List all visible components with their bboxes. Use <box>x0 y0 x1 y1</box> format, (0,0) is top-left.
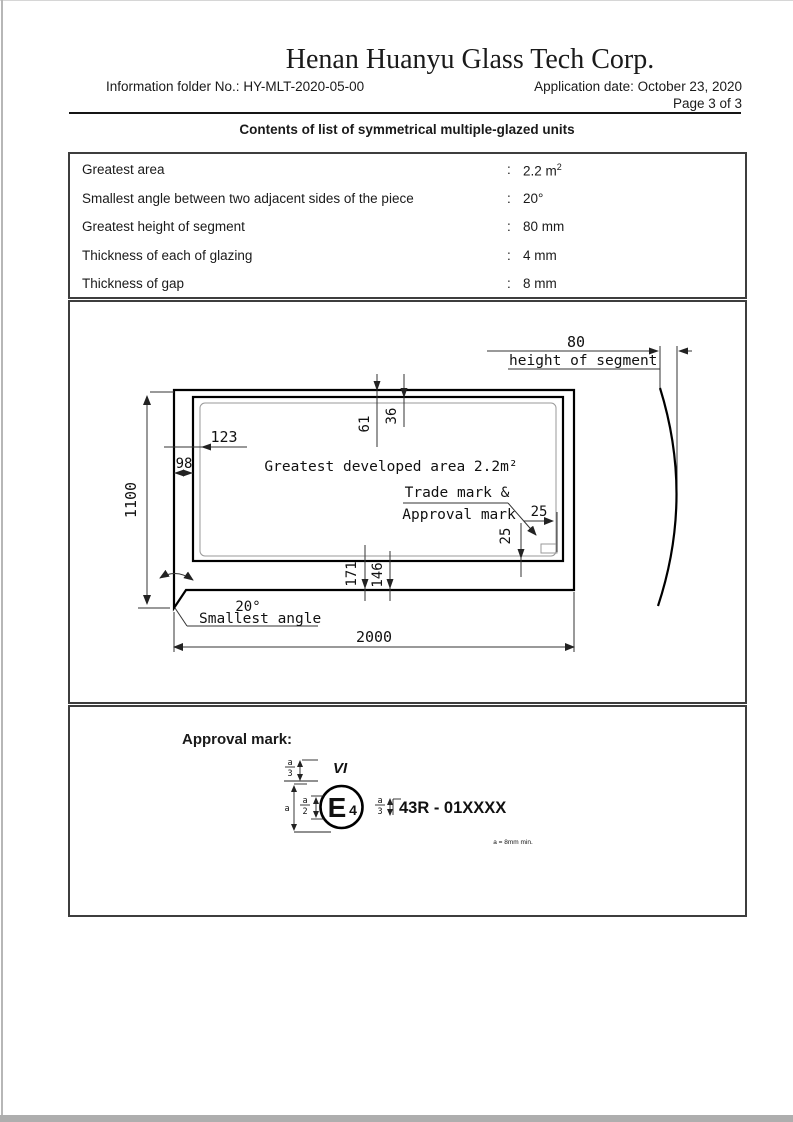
document-page: Henan Huanyu Glass Tech Corp. Informatio… <box>0 0 793 1122</box>
spec-colon: : <box>507 162 511 177</box>
dim-61-label: 61 <box>357 416 373 433</box>
spec-label: Greatest height of segment <box>82 219 245 234</box>
technical-drawing-panel: 80 height of segment 1100 123 <box>68 300 747 704</box>
approval-mark-panel: Approval mark: a 3 VI E <box>68 705 747 917</box>
application-date: Application date: October 23, 2020 <box>534 79 742 94</box>
dim-25-v-label: 25 <box>498 528 514 545</box>
trademark-rect <box>541 544 557 553</box>
scan-edge-top <box>0 0 793 1</box>
dim-123: 123 <box>164 428 247 451</box>
spec-value: 8 mm <box>523 276 557 291</box>
e-mark: E 4 <box>321 786 363 828</box>
table-row: Thickness of gap : 8 mm <box>70 276 745 296</box>
table-row: Smallest angle between two adjacent side… <box>70 191 745 211</box>
spec-table: Greatest area : 2.2 m2 Smallest angle be… <box>68 152 747 299</box>
spec-value: 2.2 m2 <box>523 162 562 179</box>
dim-123-label: 123 <box>210 428 237 446</box>
spec-colon: : <box>507 219 511 234</box>
spec-label: Smallest angle between two adjacent side… <box>82 191 414 206</box>
dim-height-of-segment: 80 height of segment <box>487 333 692 606</box>
trademark-callout: Trade mark & Approval mark <box>402 485 536 535</box>
approval-note: a = 8mm min. <box>493 839 533 846</box>
dim-25-h-label: 25 <box>531 504 548 520</box>
frac-a-label: a <box>377 796 382 806</box>
spec-label: Thickness of each of glazing <box>82 248 252 263</box>
dim-2000-label: 2000 <box>356 628 392 646</box>
spec-value: 80 mm <box>523 219 564 234</box>
smallest-angle-label: Smallest angle <box>199 611 321 627</box>
e-mark-letter: E <box>328 792 347 823</box>
spec-colon: : <box>507 248 511 263</box>
scan-edge-bottom <box>0 1115 793 1122</box>
trademark-label-line1: Trade mark & <box>405 485 510 501</box>
spec-label: Greatest area <box>82 162 165 177</box>
approval-heading: Approval mark: <box>182 731 292 748</box>
spec-value-sup: 2 <box>557 162 562 172</box>
dim-1100-label: 1100 <box>122 482 140 518</box>
spec-value: 4 mm <box>523 248 557 263</box>
dim-a-third-right: a 3 <box>375 796 401 817</box>
dim-80-label: 80 <box>567 333 585 351</box>
dim-a-label: a <box>284 804 289 814</box>
spec-value: 20° <box>523 191 543 206</box>
header-rule <box>69 112 741 114</box>
dim-36-label: 36 <box>384 408 400 425</box>
page-title: Contents of list of symmetrical multiple… <box>68 122 746 137</box>
page-number: Page 3 of 3 <box>673 96 742 111</box>
table-row: Greatest area : 2.2 m2 <box>70 162 745 182</box>
dim-a-left: a <box>284 784 331 832</box>
frac-a-label: a <box>287 758 292 768</box>
dim-98: 98 <box>174 456 193 477</box>
smallest-angle-callout: 20° Smallest angle <box>160 573 321 627</box>
vi-label: VI <box>333 760 348 777</box>
approval-code: 43R - 01XXXX <box>399 799 506 817</box>
segment-arc <box>658 388 677 606</box>
info-folder-number: Information folder No.: HY-MLT-2020-05-0… <box>106 79 364 94</box>
scan-edge-left <box>1 0 3 1122</box>
frac-3-label: 3 <box>377 807 382 817</box>
trademark-label-line2: Approval mark <box>402 507 516 523</box>
dim-98-label: 98 <box>176 456 193 472</box>
spec-label: Thickness of gap <box>82 276 184 291</box>
greatest-area-label: Greatest developed area 2.2m² <box>264 459 517 475</box>
dim-1100: 1100 <box>122 392 174 608</box>
table-row: Greatest height of segment : 80 mm <box>70 219 745 239</box>
technical-drawing: 80 height of segment 1100 123 <box>70 302 741 698</box>
table-row: Thickness of each of glazing : 4 mm <box>70 248 745 268</box>
e-mark-number: 4 <box>349 802 357 818</box>
frac-2-label: 2 <box>302 807 307 817</box>
dim-146-label: 146 <box>370 562 386 587</box>
spec-colon: : <box>507 191 511 206</box>
dim-171-146: 171 146 <box>344 545 394 601</box>
dim-a-third-top: a 3 <box>284 758 318 781</box>
spec-colon: : <box>507 276 511 291</box>
frac-a-label: a <box>302 796 307 806</box>
company-name: Henan Huanyu Glass Tech Corp. <box>150 44 790 76</box>
frac-3-label: 3 <box>287 769 292 779</box>
height-of-segment-label: height of segment <box>509 353 657 369</box>
approval-mark-diagram: a 3 VI E 4 a <box>70 707 741 911</box>
dim-25-vertical: 25 <box>498 523 525 577</box>
dim-171-label: 171 <box>344 561 360 586</box>
dim-61-36: 61 36 <box>357 374 408 447</box>
